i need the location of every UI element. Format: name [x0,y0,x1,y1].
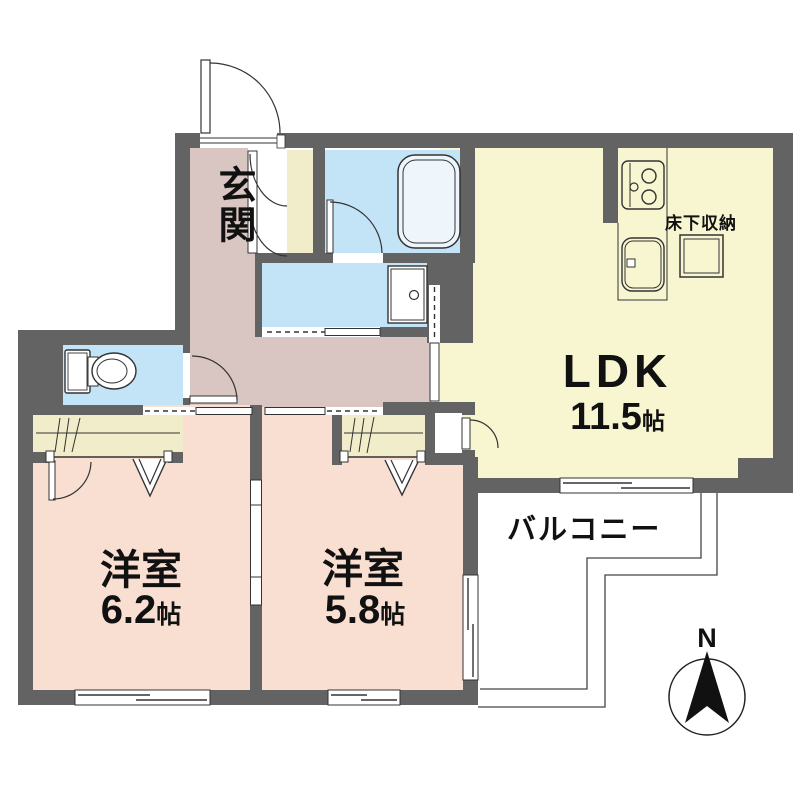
wall [33,452,50,463]
room-size-bedroom1-unit: 帖 [156,601,181,629]
balcony-label: バルコニー [507,506,661,548]
window-ldk-balcony [560,478,693,493]
ldk-sliding-door-zone [429,285,440,343]
compass [669,651,745,735]
washroom-sliding-door-zone [265,327,380,337]
room-label-bedroom1: 洋室 [61,536,221,596]
genkan-closet-floor [287,150,313,253]
room-size-bedroom2: 5.8帖 [285,588,445,633]
bedroom2-closet-floor [342,415,425,457]
washroom-floor [262,263,432,327]
room-size-ldk-unit: 帖 [642,408,665,434]
underfloor-storage-label: 床下収納 [665,209,737,234]
north-arrow-icon [685,651,729,723]
toilet-door-opening [183,353,190,398]
wall [33,345,63,405]
room-size-bedroom1: 6.2帖 [61,588,221,633]
wall [255,253,262,337]
wall [603,148,618,223]
window-bedroom2-south [328,690,400,705]
room-label-ldk: LDK [535,344,700,398]
room-label-genkan: 玄関 [206,165,261,245]
wall [250,405,262,690]
bathroom-floor [325,150,460,253]
bedroom1-sliding-door-zone [143,407,252,415]
wall [380,327,433,337]
room-size-bedroom2-unit: 帖 [380,601,405,629]
wall [18,345,33,705]
entrance-threshold [200,133,277,148]
wall [175,148,190,345]
room-size-bedroom2-value: 5.8 [325,588,381,632]
wall [738,458,793,493]
window-bedroom2-east [463,575,478,680]
bedroom1-closet-floor [33,415,183,457]
floor-plan: 玄関 LDK 11.5帖 洋室 6.2帖 洋室 5.8帖 バルコニー 床下収納 … [0,0,800,800]
wall [773,148,793,493]
window-bedroom1-south [75,690,210,705]
toilet-floor [60,345,183,405]
wall [425,407,435,465]
room-size-ldk: 11.5帖 [535,396,700,439]
wall [18,330,190,345]
bathroom-door-opening [333,253,383,263]
room-size-ldk-value: 11.5 [570,396,642,438]
wall [332,415,342,465]
wall [460,148,475,263]
bedroom2-sliding-door-zone [265,407,383,415]
wall [33,405,143,415]
room-size-bedroom1-value: 6.2 [101,588,157,632]
hall-floor [188,337,432,407]
hall-floor-upper [190,253,255,337]
compass-north-label: N [677,623,737,654]
wall [313,148,325,253]
room-label-bedroom2: 洋室 [283,535,443,595]
ldk-door-niche [435,413,462,453]
wall [168,452,183,463]
